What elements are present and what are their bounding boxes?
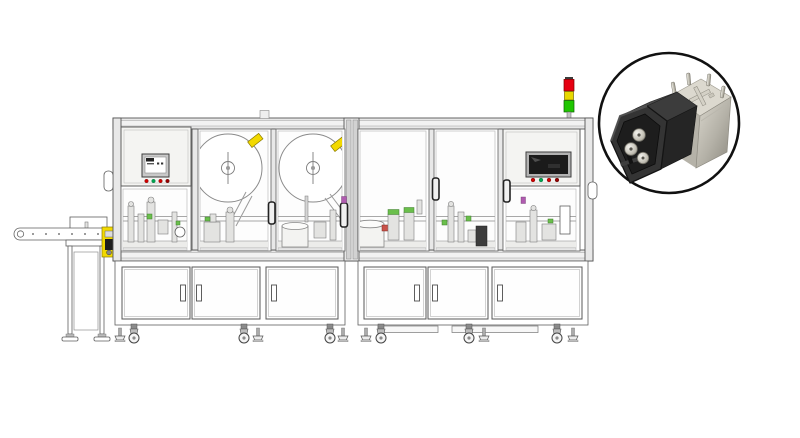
- module-divider-post: [344, 118, 359, 261]
- left-side-handle: [104, 171, 113, 191]
- signal-light-green: [564, 101, 574, 113]
- cabinet-handle[interactable]: [181, 285, 186, 301]
- signal-tower: [564, 77, 574, 119]
- signal-light-yellow: [565, 92, 574, 101]
- outfeed-conveyor: [14, 217, 116, 341]
- hmi-screen-right[interactable]: [526, 152, 571, 177]
- door-window-R2: [434, 129, 498, 251]
- cabinet-door[interactable]: [122, 267, 190, 319]
- door-latch: [342, 197, 347, 204]
- right-hmi-panel: [503, 129, 580, 186]
- left-hmi-panel: [121, 127, 191, 186]
- cabinet-handle[interactable]: [415, 285, 420, 301]
- cabinet-door[interactable]: [192, 267, 260, 319]
- product-inset: [599, 53, 739, 193]
- right-side-handle: [588, 182, 597, 199]
- bowl-feeder-1: [282, 223, 308, 248]
- conveyor-belt: [14, 228, 108, 240]
- cabinet-door[interactable]: [492, 267, 582, 319]
- cabinet-handle[interactable]: [498, 285, 503, 301]
- hmi-screen-left[interactable]: [142, 154, 169, 177]
- cabinet-right: [358, 261, 588, 325]
- product-image-page: [0, 0, 800, 438]
- cabinet-handle[interactable]: [272, 285, 277, 301]
- cabinet-handle[interactable]: [433, 285, 438, 301]
- signal-light-red: [564, 79, 574, 91]
- cabinet-left: [115, 261, 345, 325]
- machine-feet: [115, 324, 578, 343]
- machine-drawing: [0, 0, 800, 438]
- cabinet-handle[interactable]: [197, 285, 202, 301]
- bowl-feeder-2: [356, 220, 384, 247]
